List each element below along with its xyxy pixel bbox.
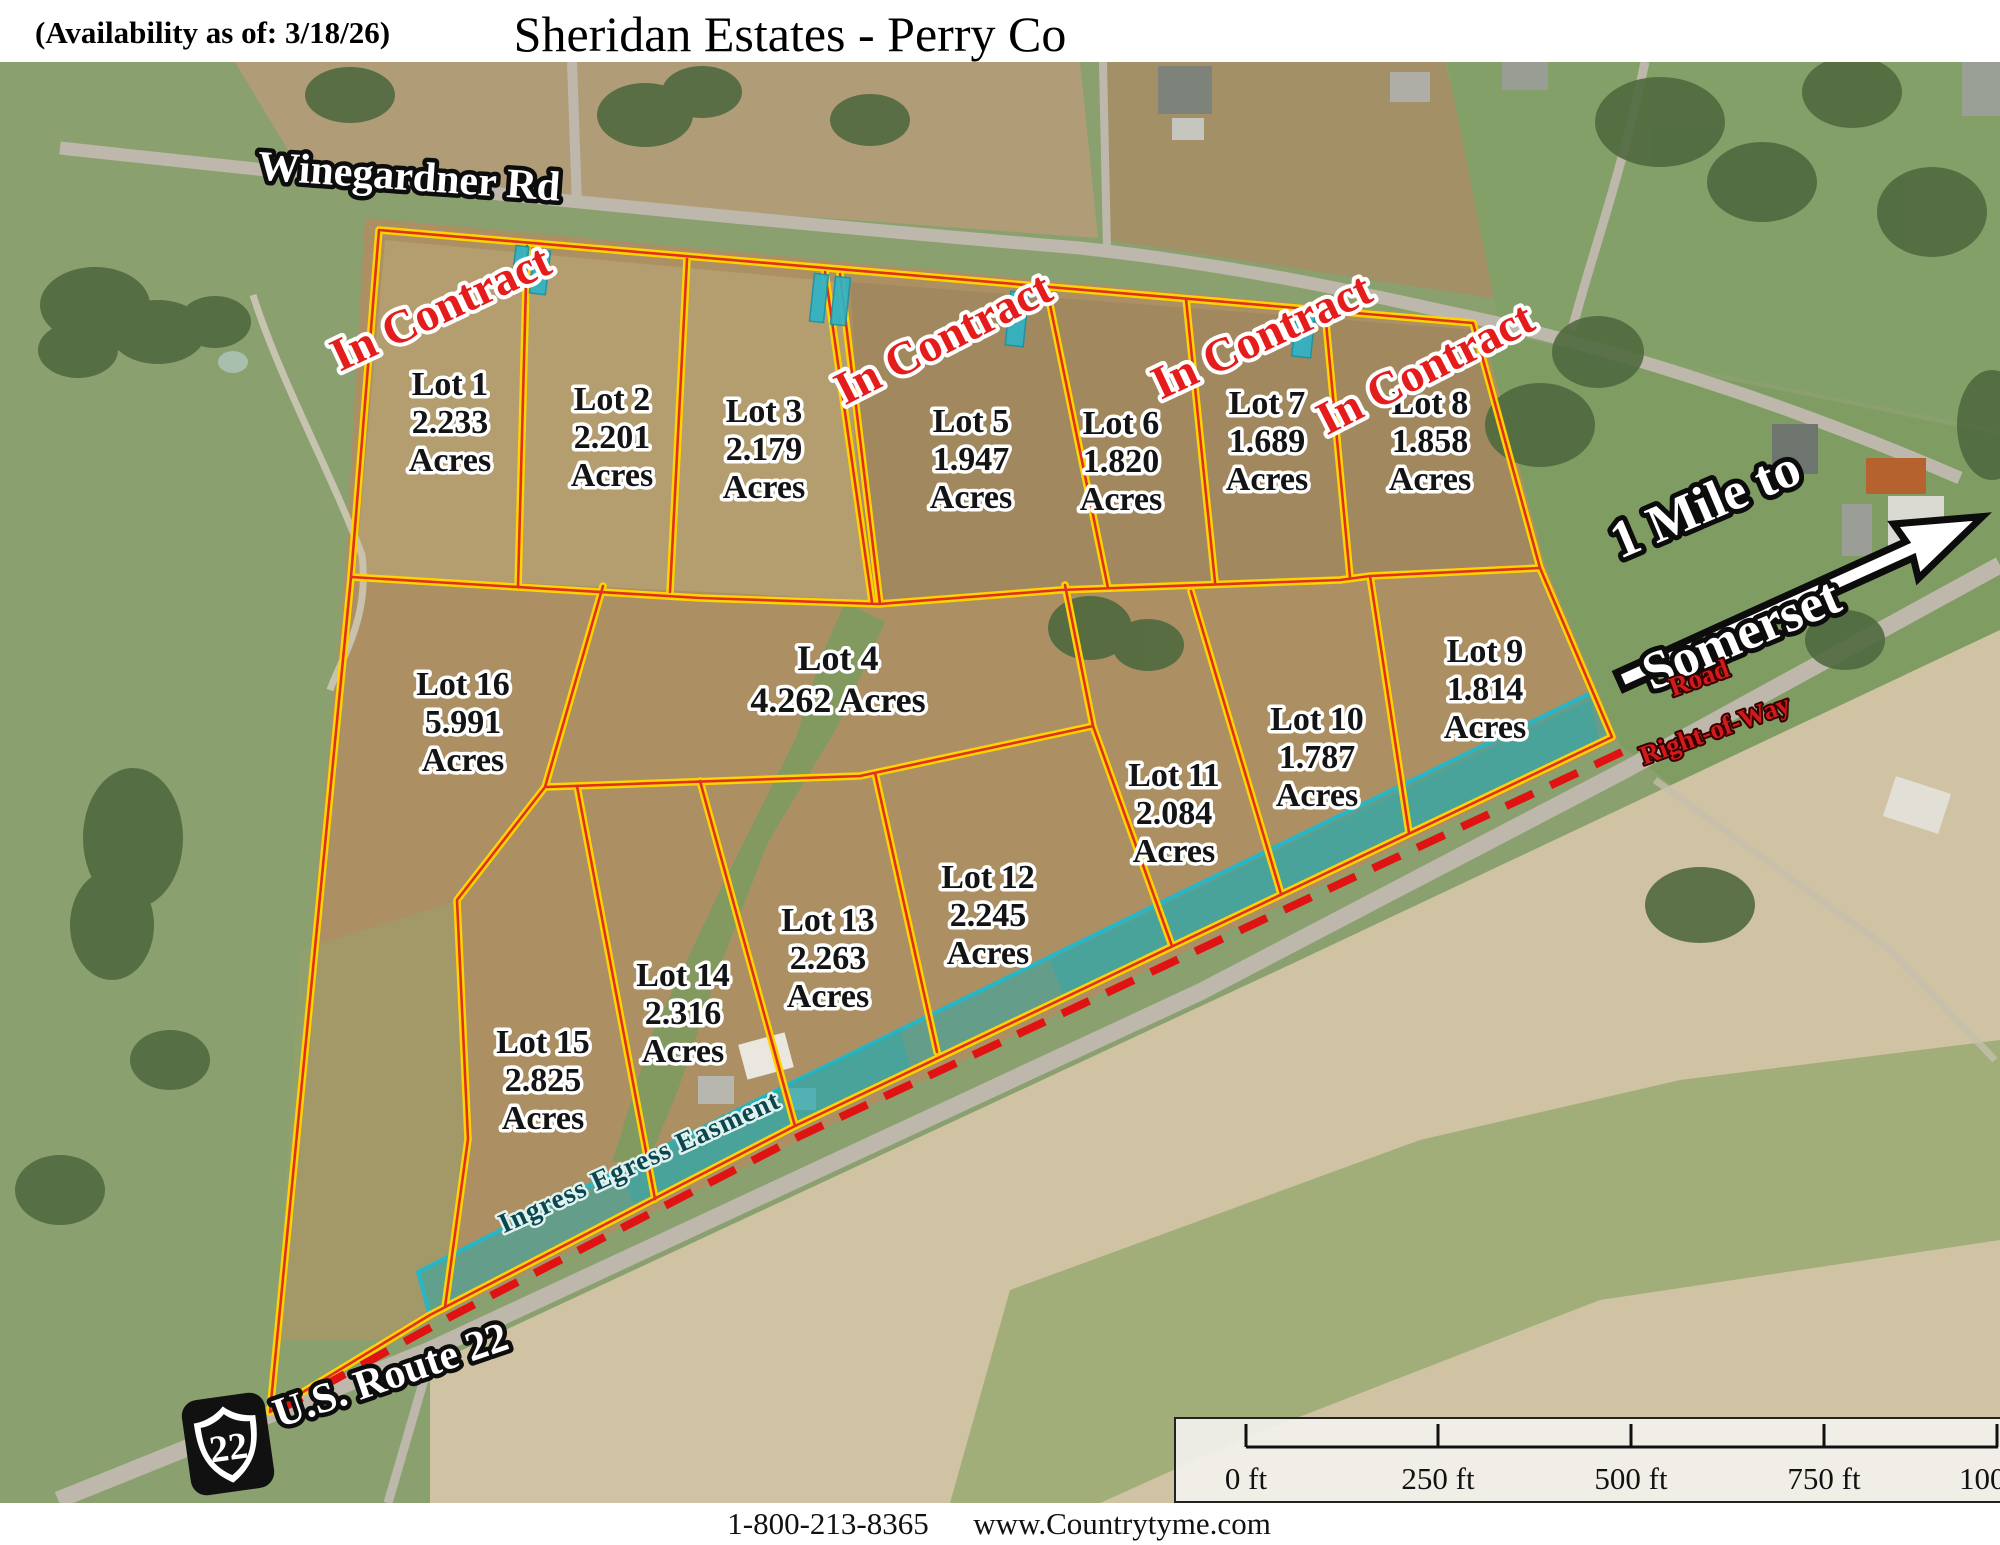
svg-text:2.233: 2.233 xyxy=(412,404,489,441)
svg-text:Lot 16: Lot 16 xyxy=(416,666,510,703)
svg-text:2.179: 2.179 xyxy=(726,431,803,468)
svg-text:Lot 9: Lot 9 xyxy=(1447,633,1524,670)
svg-text:Lot 3: Lot 3 xyxy=(726,393,803,430)
lot-label-14: Lot 14 2.316 Acres xyxy=(636,957,730,1070)
svg-text:Lot 11: Lot 11 xyxy=(1128,757,1220,794)
lot-label-11: Lot 11 2.084 Acres xyxy=(1128,757,1220,870)
svg-text:Lot 2: Lot 2 xyxy=(574,381,651,418)
lot-label-13: Lot 13 2.263 Acres xyxy=(781,902,875,1015)
lot-label-10: Lot 10 1.787 Acres xyxy=(1270,701,1364,814)
lot-label-1: Lot 1 2.233 Acres xyxy=(409,366,491,479)
svg-text:Lot 10: Lot 10 xyxy=(1270,701,1364,738)
svg-text:Acres: Acres xyxy=(723,469,805,506)
svg-text:Acres: Acres xyxy=(642,1033,724,1070)
svg-text:250 ft: 250 ft xyxy=(1401,1461,1475,1496)
svg-text:2.263: 2.263 xyxy=(790,940,867,977)
svg-text:Lot 13: Lot 13 xyxy=(781,902,875,939)
scale-bar: 0 ft 250 ft 500 ft 750 ft 1000 xyxy=(1175,1418,2000,1502)
svg-text:5.991: 5.991 xyxy=(425,704,502,741)
svg-text:Acres: Acres xyxy=(1389,461,1471,498)
svg-text:1.858: 1.858 xyxy=(1392,423,1469,460)
aerial-imagery xyxy=(0,56,2000,1503)
svg-text:1.787: 1.787 xyxy=(1279,739,1356,776)
lot-label-15: Lot 15 2.825 Acres xyxy=(496,1024,590,1137)
svg-text:Acres: Acres xyxy=(1133,833,1215,870)
plat-map-page: Lot 1 2.233 Acres Lot 2 2.201 Acres Lot … xyxy=(0,0,2000,1545)
lot-label-16: Lot 16 5.991 Acres xyxy=(416,666,510,779)
svg-text:4.262 Acres: 4.262 Acres xyxy=(750,680,925,720)
availability-note: (Availability as of: 3/18/26) xyxy=(35,15,390,50)
svg-text:1.814: 1.814 xyxy=(1447,671,1524,708)
svg-text:2.825: 2.825 xyxy=(505,1062,582,1099)
svg-text:Lot 7: Lot 7 xyxy=(1229,385,1306,422)
svg-text:Acres: Acres xyxy=(787,978,869,1015)
lot-label-2: Lot 2 2.201 Acres xyxy=(571,381,653,494)
svg-text:Lot 6: Lot 6 xyxy=(1083,405,1160,442)
svg-text:500 ft: 500 ft xyxy=(1594,1461,1668,1496)
svg-text:1.820: 1.820 xyxy=(1083,443,1160,480)
svg-text:Acres: Acres xyxy=(422,742,504,779)
svg-text:Acres: Acres xyxy=(1226,461,1308,498)
svg-text:0 ft: 0 ft xyxy=(1225,1461,1268,1496)
lot-label-5: Lot 5 1.947 Acres xyxy=(930,403,1012,516)
lot-label-12: Lot 12 2.245 Acres xyxy=(941,859,1035,972)
svg-text:Acres: Acres xyxy=(930,479,1012,516)
svg-text:1.689: 1.689 xyxy=(1229,423,1306,460)
svg-text:Lot 12: Lot 12 xyxy=(941,859,1035,896)
route-shield-number: 22 xyxy=(207,1425,250,1472)
svg-text:Lot 4: Lot 4 xyxy=(798,638,879,678)
header-band: (Availability as of: 3/18/26) Sheridan E… xyxy=(0,0,2000,62)
svg-text:Acres: Acres xyxy=(409,442,491,479)
svg-text:2.245: 2.245 xyxy=(950,897,1027,934)
svg-text:Lot 1: Lot 1 xyxy=(412,366,489,403)
svg-text:Acres: Acres xyxy=(947,935,1029,972)
svg-text:2.201: 2.201 xyxy=(574,419,651,456)
svg-text:2.316: 2.316 xyxy=(645,995,722,1032)
svg-text:Acres: Acres xyxy=(502,1100,584,1137)
svg-text:Acres: Acres xyxy=(571,457,653,494)
page-title: Sheridan Estates - Perry Co xyxy=(514,6,1067,62)
svg-text:Lot 14: Lot 14 xyxy=(636,957,730,994)
svg-text:1000: 1000 xyxy=(1959,1461,2000,1496)
lot-label-9: Lot 9 1.814 Acres xyxy=(1444,633,1526,746)
svg-text:Acres: Acres xyxy=(1276,777,1358,814)
svg-text:2.084: 2.084 xyxy=(1136,795,1213,832)
lot-label-6: Lot 6 1.820 Acres xyxy=(1080,405,1162,518)
plat-map-canvas: Lot 1 2.233 Acres Lot 2 2.201 Acres Lot … xyxy=(0,0,2000,1545)
us-route-22-shield: 22 xyxy=(180,1391,277,1498)
footer-website: www.Countrytyme.com xyxy=(973,1506,1271,1541)
footer-phone: 1-800-213-8365 xyxy=(727,1506,928,1541)
svg-text:Acres: Acres xyxy=(1444,709,1526,746)
svg-text:1.947: 1.947 xyxy=(933,441,1010,478)
lot-label-7: Lot 7 1.689 Acres xyxy=(1226,385,1308,498)
svg-text:Lot 5: Lot 5 xyxy=(933,403,1010,440)
lot-label-3: Lot 3 2.179 Acres xyxy=(723,393,805,506)
svg-text:750 ft: 750 ft xyxy=(1787,1461,1861,1496)
svg-text:Lot 15: Lot 15 xyxy=(496,1024,590,1061)
svg-text:Acres: Acres xyxy=(1080,481,1162,518)
footer-band: 1-800-213-8365 www.Countrytyme.com xyxy=(0,1503,2000,1545)
